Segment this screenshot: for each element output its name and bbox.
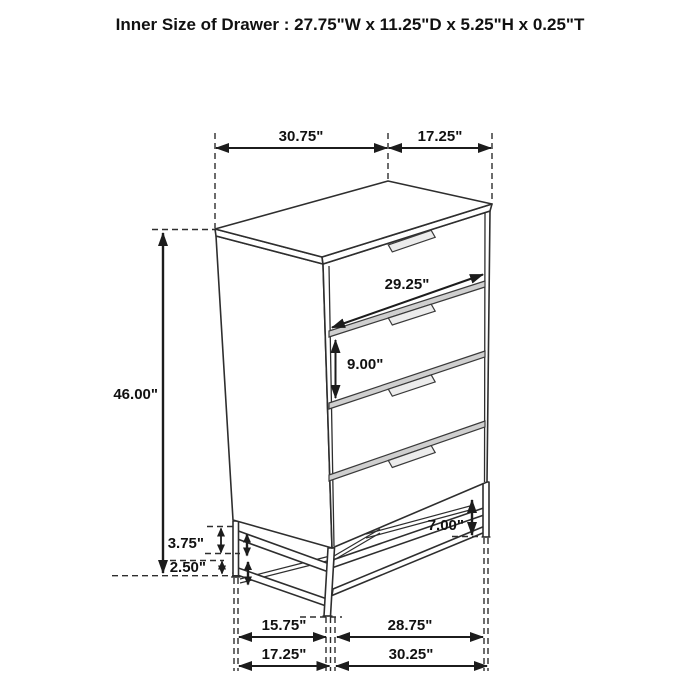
dim-label-top-width: 30.75" — [279, 128, 324, 145]
cabinet-left-side-panel — [216, 236, 332, 548]
dim-label-drawer-width: 29.25" — [385, 276, 430, 293]
dim-label-base-outer-width: 30.25" — [389, 646, 434, 663]
dim-label-overall-height: 46.00" — [113, 386, 158, 403]
dim-label-base-inner-depth: 15.75" — [262, 617, 307, 634]
dim-label-drawer-height: 9.00" — [347, 356, 383, 373]
dim-label-base-upper-gap: 3.75" — [168, 535, 204, 552]
diagram-title: Inner Size of Drawer : 27.75"W x 11.25"D… — [116, 15, 585, 34]
dim-label-top-depth: 17.25" — [418, 128, 463, 145]
dim-label-base-lower-gap: 2.50" — [170, 559, 206, 576]
dim-label-base-inner-width: 28.75" — [388, 617, 433, 634]
diagram-svg: Inner Size of Drawer : 27.75"W x 11.25"D… — [0, 0, 700, 700]
dim-label-base-outer-depth: 17.25" — [262, 646, 307, 663]
dim-label-floor-clearance: 7.00" — [428, 517, 464, 534]
furniture-dimension-diagram: Inner Size of Drawer : 27.75"W x 11.25"D… — [0, 0, 700, 700]
